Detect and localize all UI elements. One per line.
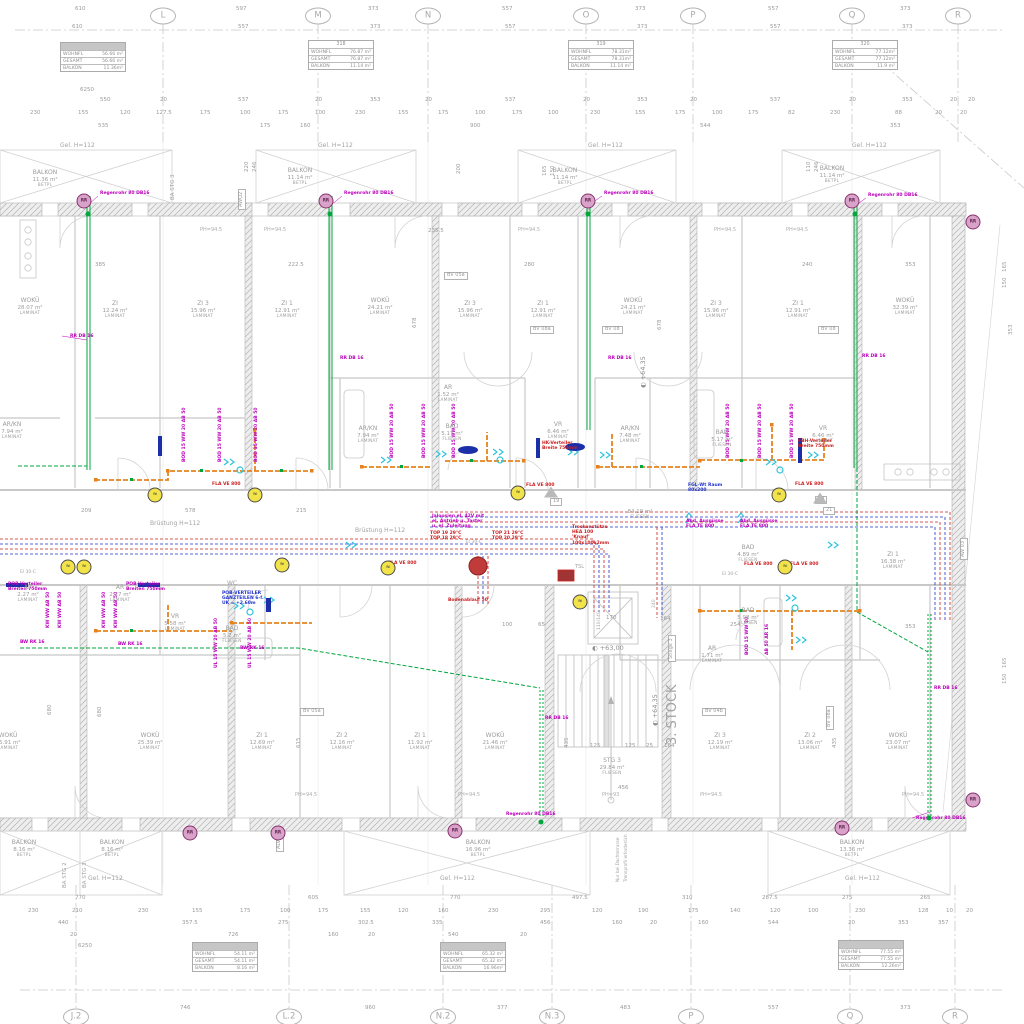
area-table: 319WOHNFL78.31m²GESAMT78.31m²BALKON11.14… [568, 40, 634, 70]
dimension-label: 353 [905, 624, 916, 630]
dimension-label: 605 [308, 895, 319, 901]
balcony-label: BALKON11.14 m²BETPL [552, 168, 577, 186]
balcony-label: BALKON11.14 m²BETPL [287, 168, 312, 186]
rainpipe-symbol: RR [966, 215, 981, 230]
plan-text: Brüstung H=112 [355, 528, 405, 535]
grid-bubble: R [942, 1009, 968, 1024]
room-label: WOKÜ25.91 m²LAMINAT [0, 733, 21, 751]
dimension-label: 82 [788, 110, 795, 116]
dimension-label: 164 [660, 616, 671, 622]
dimension-label: 385 [95, 262, 106, 268]
elevation-marker: ◐ +64,35 [640, 356, 647, 388]
boxed-label: BV 05a [300, 708, 324, 716]
heating-annotation: FLA VE 800 [790, 562, 819, 567]
dimension-label: 900 [470, 123, 481, 129]
dimension-label: 246 [252, 162, 258, 173]
dimension-label: 353 [370, 97, 381, 103]
plan-text: Gel. H=112 [845, 876, 880, 883]
dimension-label: 120 [770, 908, 781, 914]
dimension-label: 235.5 [428, 228, 444, 234]
valve-symbol: ≈ [511, 486, 526, 501]
plan-text: BA STG 2 [62, 862, 68, 888]
pipe-annotation: RR DB 16 [934, 686, 958, 691]
dimension-label: 6250 [78, 943, 92, 949]
plan-text: TSL [575, 565, 584, 571]
heating-annotation: TOP 19 29°CTOP 18 29°C [430, 531, 461, 541]
room-label: ZI 315.96 m²LAMINAT [457, 301, 482, 319]
dimension-label: 175 [512, 110, 523, 116]
dimension-label: 20 [966, 908, 973, 914]
pipe-annotation: Regenrohr 80 DB16 [344, 191, 394, 196]
plan-text: El 30-C [20, 570, 36, 575]
shaft-symbol [469, 557, 488, 576]
dimension-label: 357 [938, 920, 949, 926]
pipe-node [539, 820, 544, 825]
balcony-label: BALKON16.96 m²BETPL [465, 840, 490, 858]
rainpipe-symbol: RR [183, 826, 198, 841]
dimension-label: 373 [635, 6, 646, 12]
room-label: WOKÜ21.46 m²LAMINAT [482, 733, 507, 751]
heating-annotation: HK-VerteilerBreite 750mm [542, 441, 578, 451]
room-label: WOKÜ32.39 m²LAMINAT [892, 298, 917, 316]
rainpipe-symbol: RR [448, 824, 463, 839]
dimension-label: 100 [475, 110, 486, 116]
valve-symbol: ≈ [77, 560, 92, 575]
dimension-label: 20 [849, 97, 856, 103]
room-label: WOKÜ24.21 m²LAMINAT [367, 298, 392, 316]
dimension-label: 302.5 [358, 920, 374, 926]
parapet-height-label: PH=94.5 [295, 793, 317, 799]
dimension-label: 20 [583, 97, 590, 103]
room-label: WOKÜ24.21 m²LAMINAT [620, 298, 645, 316]
grid-bubble: N.3 [539, 1009, 565, 1024]
dimension-label: 353 [898, 920, 909, 926]
dimension-label: 544 [700, 123, 711, 129]
plan-text: Nur bei Dachterrasse [616, 838, 621, 882]
plan-text: Trennprofil erforderlich [624, 834, 629, 882]
area-table: WOHNFL65.32 m²GESAMT65.32 m²BALKON16.96m… [440, 942, 506, 972]
dimension-label: 353 [890, 123, 901, 129]
rainpipe-symbol: RR [77, 194, 92, 209]
dimension-label: 230 [28, 908, 39, 914]
dimension-label: 275 [842, 895, 853, 901]
room-label: 84.19 m²FLIESEN [627, 509, 652, 520]
area-table: WOHNFL77.55 m²GESAMT77.55 m²BALKON12.26m… [838, 940, 904, 970]
dimension-label: 440 [58, 920, 69, 926]
room-label: WOKÜ23.07 m²LAMINAT [885, 733, 910, 751]
fixture-annotation: POB-VERTEILERGANZTEILEN 6-f.UK = +2.60m [222, 591, 264, 607]
dimension-label: 20 [315, 97, 322, 103]
dimension-label: 200 [456, 164, 462, 175]
pipe-annotation: BW RK 16 [20, 640, 45, 645]
room-label: STG 329.84 m²FLIESEN [599, 758, 624, 776]
parapet-height-label: PH=94.5 [786, 228, 808, 234]
dimension-label: 544 [768, 920, 779, 926]
grid-bubble: R [945, 8, 971, 25]
dimension-label: 160 [300, 123, 311, 129]
plan-text: Gel. H=112 [60, 143, 95, 150]
room-label: AR1.71 m²LAMINAT [701, 646, 723, 664]
dimension-label: 125 [625, 743, 636, 749]
dimension-label: 175 [240, 908, 251, 914]
dimension-label: 557 [502, 6, 513, 12]
dimension-label: 726 [228, 932, 239, 938]
dimension-label: 230 [355, 110, 366, 116]
dimension-label: 100 [808, 908, 819, 914]
dimension-label: 230 [855, 908, 866, 914]
dimension-label: 483 [620, 1005, 631, 1011]
dimension-label: 20 [520, 932, 527, 938]
room-label: ZI 112.91 m²LAMINAT [274, 301, 299, 319]
grid-bubble: M [305, 8, 331, 25]
balcony-label: BALKON11.14 m²BETPL [819, 166, 844, 184]
dimension-label: 230 [590, 110, 601, 116]
dimension-label: 140 [730, 908, 741, 914]
balcony-label: BALKON8.16 m²BETPL [12, 840, 36, 858]
grid-bubble: L [150, 8, 176, 25]
heating-annotation: Bodenablauf 50 [448, 598, 488, 603]
dimension-label: 230 [488, 908, 499, 914]
pipe-annotation: Jalousien el. 42V mitel. Antrieb u. Tast… [432, 514, 484, 530]
dimension-label: 175 [278, 110, 289, 116]
room-label: ZI 116.38 m²LAMINAT [880, 552, 905, 570]
grid-bubble: Q [839, 8, 865, 25]
dimension-label: 770 [450, 895, 461, 901]
plan-text: 3. STOCK [666, 684, 681, 745]
dimension-label: 20 [960, 110, 967, 116]
boxed-label: AWO2 [238, 189, 246, 210]
heating-annotation: FLA VE 800 [212, 482, 241, 487]
room-label: ZI 315.96 m²LAMINAT [190, 301, 215, 319]
direction-triangle [813, 493, 827, 504]
dimension-label: 557 [505, 24, 516, 30]
dimension-label: 165 [542, 166, 548, 177]
pipe-annotation: POB-VerteilerBreiten 750mm [126, 582, 165, 592]
dimension-label: 150 [1002, 674, 1008, 685]
heating-annotation: TOP 21 29°CTOP 20 29°C [492, 531, 523, 541]
parapet-height-label: PH=94.5 [902, 793, 924, 799]
pipe-annotation: BOD 15 WW 20 AB 50 [790, 404, 795, 458]
pipe-node [853, 212, 858, 217]
dimension-label: 240 [802, 262, 813, 268]
valve-symbol: ≈ [381, 561, 396, 576]
dimension-label: 155 [192, 908, 203, 914]
fixture-annotation: FGL-Wt Raum80x200 [688, 483, 722, 493]
dimension-label: 610 [75, 6, 86, 12]
dimension-label: 435 [564, 738, 570, 749]
dimension-label: 678 [657, 320, 663, 331]
dimension-label: 353 [637, 97, 648, 103]
pipe-annotation: BOD 15 WW 20 AB 50 [422, 404, 427, 458]
room-label: WC [227, 581, 237, 588]
dimension-label: 155 [78, 110, 89, 116]
dimension-label: 230 [138, 908, 149, 914]
dimension-label: 20 [650, 920, 657, 926]
plan-text: 110/140 [597, 611, 602, 630]
pipe-annotation: RR DB 16 [340, 356, 364, 361]
pipe-annotation: Regenrohr 80 DB16 [916, 816, 966, 821]
dimension-label: 373 [902, 24, 913, 30]
dimension-label: 678 [412, 318, 418, 329]
dimension-label: 537 [505, 97, 516, 103]
dimension-label: 128 [918, 908, 929, 914]
room-label: BAD5.17 m²FLIESEN [711, 430, 733, 448]
grid-bubble: O [573, 8, 599, 25]
boxed-label: Stiege 3 [668, 635, 676, 662]
dimension-label: 373 [637, 24, 648, 30]
pipe-annotation: Regenrohr 80 DB16 [506, 812, 556, 817]
dimension-label: 230 [30, 110, 41, 116]
dimension-label: 578 [185, 508, 196, 514]
dimension-label: 20 [368, 932, 375, 938]
dimension-label: 275 [278, 920, 289, 926]
pipe-annotation: KW WW AB 50 [102, 592, 107, 628]
balcony-label: BALKON8.16 m²BETPL [100, 840, 124, 858]
dimension-label: 373 [370, 24, 381, 30]
dimension-label: 230 [830, 110, 841, 116]
dimension-label: 373 [900, 1005, 911, 1011]
pipe-annotation: Regenrohr 80 DB16 [868, 193, 918, 198]
balcony-label: BALKON11.36 m²BETPL [32, 170, 57, 188]
parapet-height-label: PH=94.5 [714, 228, 736, 234]
dimension-label: 110 [806, 162, 812, 173]
dimension-label: 557 [768, 1005, 779, 1011]
direction-triangle [544, 487, 558, 498]
room-label: ZI12.24 m²LAMINAT [102, 301, 127, 319]
room-label: AR/KN7.94 m²LAMINAT [1, 422, 23, 440]
dimension-label: 456 [618, 785, 629, 791]
room-label: WOKÜ28.07 m²LAMINAT [17, 298, 42, 316]
room-label: ZI 312.19 m²LAMINAT [707, 733, 732, 751]
valve-symbol: ≈ [778, 560, 793, 575]
dimension-label: 537 [238, 97, 249, 103]
room-label: VR6.46 m²LAMINAT [812, 426, 834, 444]
plan-text: Gel. H=112 [588, 143, 623, 150]
boxed-label: BV 08 [602, 326, 623, 334]
plan-text: Gel. H=112 [318, 143, 353, 150]
pipe-annotation: AB 50 AR 16 [765, 624, 770, 655]
pipe-annotation: BW RK 16 [118, 642, 143, 647]
plan-text: Gel. H=112 [440, 876, 475, 883]
grid-bubble: J.2 [63, 1009, 89, 1024]
dimension-label: 65 [538, 622, 545, 628]
dimension-label: 287.5 [762, 895, 778, 901]
dimension-label: 120 [120, 110, 131, 116]
room-label: AR/KN7.94 m²LAMINAT [357, 426, 379, 444]
dimension-label: 550 [100, 97, 111, 103]
room-label: WOKÜ25.39 m²LAMINAT [137, 733, 162, 751]
dimension-label: 175 [260, 123, 271, 129]
grid-bubble: L.2 [276, 1009, 302, 1024]
plan-text: El 30-C [722, 572, 738, 577]
dimension-label: 265 [920, 895, 931, 901]
grid-bubble: N.2 [430, 1009, 456, 1024]
dimension-label: 357.5 [182, 920, 198, 926]
dimension-label: 222.5 [288, 262, 304, 268]
dimension-label: 155 [398, 110, 409, 116]
pipe-annotation: RR DB 16 [545, 716, 569, 721]
pipe-node [586, 212, 591, 217]
dimension-label: 20 [70, 932, 77, 938]
dimension-label: 377 [497, 1005, 508, 1011]
dimension-label: 20 [425, 97, 432, 103]
room-label: BAD5.2 m²FLIESEN [222, 626, 241, 644]
dimension-label: 120 [398, 908, 409, 914]
dimension-label: 615 [296, 738, 302, 749]
plan-text: Gel. H=112 [88, 876, 123, 883]
pipe-annotation: UL 15 WW 20 AB 50 [214, 618, 219, 668]
valve-symbol: ≈ [61, 560, 76, 575]
dimension-label: 456 [540, 920, 551, 926]
dimension-label: 150 [1002, 278, 1008, 289]
pipe-annotation: KW WW AB 50 [46, 592, 51, 628]
room-label: ZI 213.06 m²LAMINAT [797, 733, 822, 751]
pipe-annotation: RR DB 16 [70, 334, 94, 339]
grid-bubble: Q [837, 1009, 863, 1024]
room-label: AR2.27 m²LAMINAT [109, 585, 131, 603]
dimension-label: 770 [75, 895, 86, 901]
dimension-label: 210 [72, 908, 83, 914]
dimension-label: 20 [935, 110, 942, 116]
dimension-label: 497.5 [572, 895, 588, 901]
room-label: VR6.46 m²LAMINAT [547, 422, 569, 440]
rainpipe-symbol: RR [966, 793, 981, 808]
room-label: ZI 315.96 m²LAMINAT [703, 301, 728, 319]
parapet-height-label: PH=93 [602, 793, 619, 799]
boxed-label: BV 08 [818, 326, 839, 334]
room-label: AR2.27 m²LAMINAT [17, 585, 39, 603]
room-label: BAD5.98 m²FLIESEN [737, 608, 759, 626]
plan-text: El 30-C [466, 540, 482, 545]
valve-symbol: ≈ [148, 488, 163, 503]
elevation-marker: ◐ +64,35 [652, 694, 659, 726]
dimension-label: 125 [590, 743, 601, 749]
dimension-label: 435 [832, 738, 838, 749]
valve-symbol: ≈ [248, 488, 263, 503]
boxed-label: 21 [823, 507, 835, 515]
dimension-label: 215 [296, 508, 307, 514]
boxed-label: BV 08a [530, 326, 554, 334]
dimension-label: 335 [432, 920, 443, 926]
parapet-height-label: PH=94.5 [200, 228, 222, 234]
pipe-annotation: UL 15 WW 20 AB 50 [248, 618, 253, 668]
dimension-label: 295 [540, 908, 551, 914]
dimension-label: 175 [688, 908, 699, 914]
dimension-label: 165 [1002, 658, 1008, 669]
area-table: WOHNFL56.66 m²GESAMT56.66 m²BALKON11.36m… [60, 42, 126, 72]
pipe-annotation: BOD 15 WW 20 AB 50 [254, 408, 259, 462]
dimension-label: 557 [238, 24, 249, 30]
dimension-label: 190 [638, 908, 649, 914]
dimension-label: 20 [968, 97, 975, 103]
dimension-label: 100 [315, 110, 326, 116]
dimension-label: 746 [180, 1005, 191, 1011]
area-table: WOHNFL54.11 m²GESAMT54.11 m²BALKON8.16 m… [192, 942, 258, 972]
balcony-label: BALKON13.36 m²BETPL [839, 840, 864, 858]
dimension-label: 680 [47, 705, 53, 716]
heating-annotation: FLA VE 800 [795, 482, 824, 487]
dimension-label: 100 [240, 110, 251, 116]
dimension-label: 6250 [80, 87, 94, 93]
plan-text: 240 [652, 599, 657, 608]
dimension-label: 537 [770, 97, 781, 103]
dimension-label: 160 [438, 908, 449, 914]
dimension-label: 175 [318, 908, 329, 914]
rainpipe-symbol: RR [845, 194, 860, 209]
pipe-node [328, 212, 333, 217]
pipe-annotation: BOD 15 WW 20 AB 50 [758, 404, 763, 458]
grid-bubble: N [415, 8, 441, 25]
area-table: 318WOHNFL76.87 m²GESAMT76.87 m²BALKON11.… [308, 40, 374, 70]
floor-plan-canvas: LMNOPQRJ.2L.2N.2N.3PQR610597373557373557… [0, 0, 1024, 1024]
valve-symbol: ≈ [573, 595, 588, 610]
room-label: ZI 212.16 m²LAMINAT [329, 733, 354, 751]
dimension-label: 175 [748, 110, 759, 116]
dimension-label: 557 [768, 6, 779, 12]
rainpipe-symbol: RR [271, 826, 286, 841]
grid-bubble: P [680, 8, 706, 25]
pipe-annotation: KW WW AB 50 [58, 592, 63, 628]
dimension-label: 557 [770, 24, 781, 30]
parapet-height-label: PH=94.5 [518, 228, 540, 234]
elevation-marker: ◐ +63,00 [592, 645, 624, 652]
plan-text: BA STG 3 [170, 174, 176, 200]
dimension-label: 680 [97, 707, 103, 718]
parapet-height-label: PH=94.5 [264, 228, 286, 234]
dimension-label: 175 [675, 110, 686, 116]
dimension-label: 155 [360, 908, 371, 914]
pipe-annotation: BOD 15 WW 20 AB 50 [390, 404, 395, 458]
parapet-height-label: PH=94.5 [458, 793, 480, 799]
room-label: BAD5.17 m²FLIESEN [441, 424, 463, 442]
dimension-label: 100 [280, 908, 291, 914]
rainpipe-symbol: RR [835, 821, 850, 836]
boxed-label: 19 [550, 498, 562, 506]
dimension-label: 610 [72, 24, 83, 30]
dimension-label: 20 [160, 97, 167, 103]
dimension-label: 353 [1008, 325, 1014, 336]
pipe-node [927, 816, 932, 821]
dimension-label: 100 [712, 110, 723, 116]
boxed-label: BV 05a [444, 272, 468, 280]
dimension-label: 175 [438, 110, 449, 116]
pipe-annotation: Regenrohr 80 DB16 [100, 191, 150, 196]
dimension-label: 373 [900, 6, 911, 12]
dimension-label: 160 [612, 920, 623, 926]
room-label: AR1.52 m²LAMINAT [437, 385, 459, 403]
dimension-label: 100 [502, 622, 513, 628]
dimension-label: 353 [902, 97, 913, 103]
dimension-label: 120 [592, 908, 603, 914]
dimension-label: 127.5 [156, 110, 172, 116]
plan-text: Brüstung H=112 [150, 521, 200, 528]
pipe-annotation: Regenrohr 80 DB16 [604, 191, 654, 196]
dimension-label: 960 [365, 1005, 376, 1011]
parapet-height-label: PH=94.5 [700, 793, 722, 799]
boxed-label: BV 08a [826, 706, 834, 730]
pipe-annotation: RR DB 16 [608, 356, 632, 361]
dimension-label: 170 [606, 615, 617, 621]
dimension-label: 540 [448, 932, 459, 938]
room-label: ZI 111.92 m²LAMINAT [407, 733, 432, 751]
valve-symbol: ≈ [772, 488, 787, 503]
annotation-layer: LMNOPQRJ.2L.2N.2N.3PQR610597373557373557… [0, 0, 1024, 1024]
dimension-label: 209 [81, 508, 92, 514]
dimension-label: 25 [646, 743, 653, 749]
boxed-label: BV 04b [702, 708, 726, 716]
dimension-label: 88 [895, 110, 902, 116]
room-label: ZI 112.91 m²LAMINAT [530, 301, 555, 319]
